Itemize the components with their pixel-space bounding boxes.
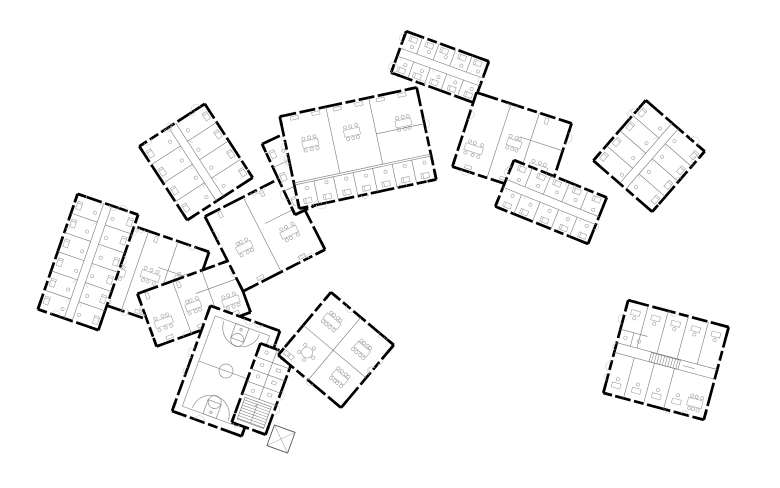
floor-plan-svg: [0, 0, 780, 488]
plan-page: [0, 0, 780, 488]
classroom-block-middle: [275, 86, 442, 214]
dorm-block-east: [589, 93, 708, 212]
dining-annex-south: [276, 292, 396, 412]
office-block-south: [598, 299, 729, 423]
garden-shed: [267, 425, 295, 453]
floor-plan: [0, 0, 780, 488]
